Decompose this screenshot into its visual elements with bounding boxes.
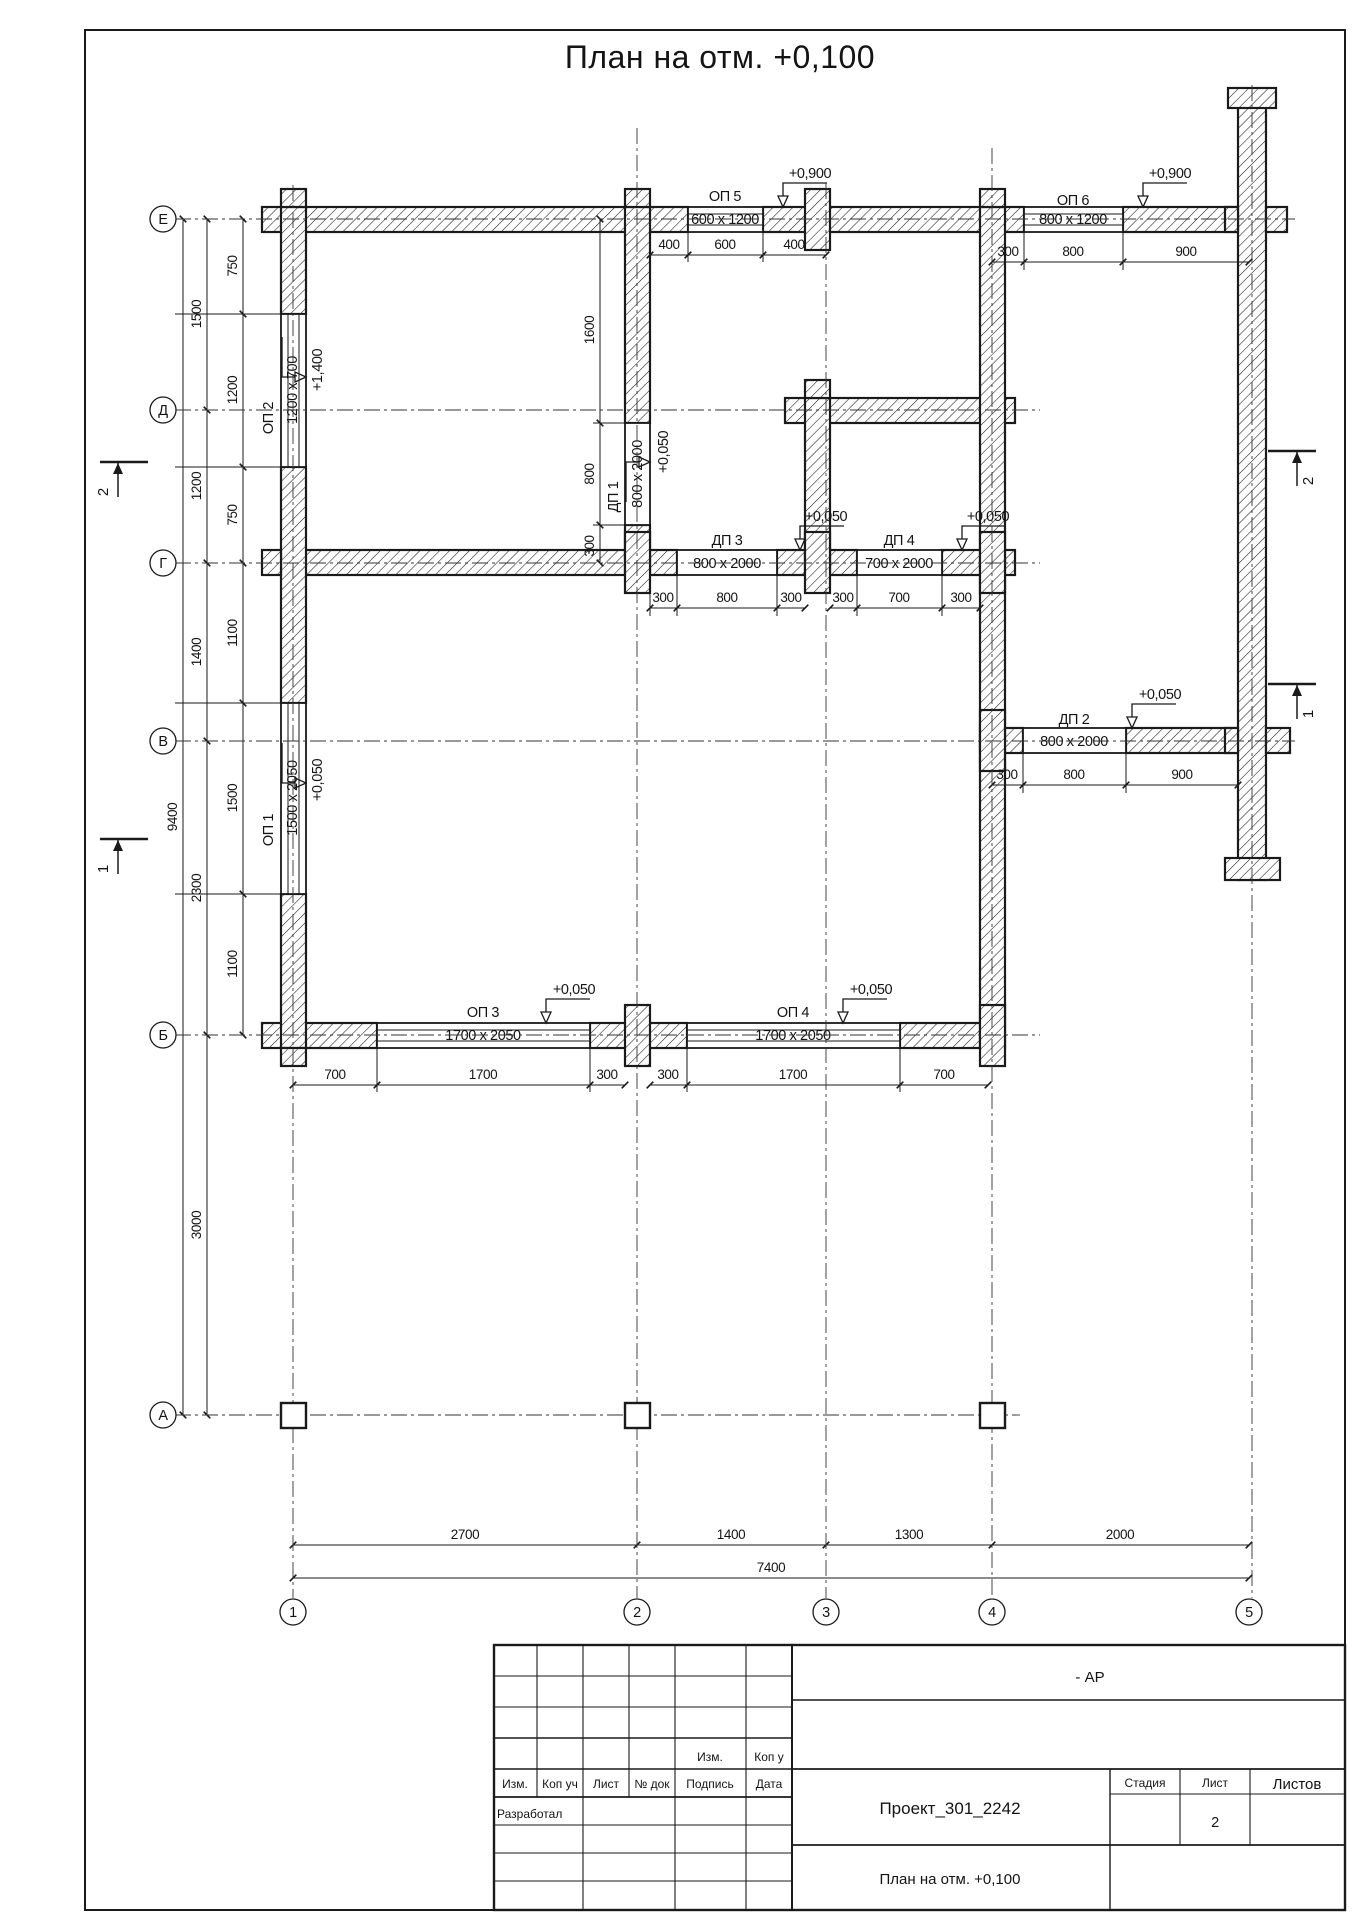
opening-label: ДП 2 xyxy=(1059,712,1090,728)
tb-sheet-number: 2 xyxy=(1211,1815,1219,1831)
page-border xyxy=(85,30,1345,1910)
axis-row-label: А xyxy=(158,1408,168,1424)
opening-label: ОП 3 xyxy=(467,1005,500,1021)
dim-label: 750 xyxy=(225,255,240,276)
dim-label: 300 xyxy=(596,1067,617,1082)
tb-header-sign: Подпись xyxy=(686,1777,734,1791)
section-labels: 2 1 2 1 xyxy=(95,477,1317,873)
dim-label: 1300 xyxy=(895,1527,923,1542)
dim-label-total: 7400 xyxy=(757,1560,785,1575)
tb-header-date: Дата xyxy=(756,1777,783,1791)
opening-size: 1700 x 2050 xyxy=(755,1028,831,1044)
opening-size: 800 x 2000 xyxy=(1040,734,1108,750)
axis-col-label: 1 xyxy=(289,1605,297,1621)
level-mark: +0,050 xyxy=(553,982,596,998)
dim-label: 1200 xyxy=(189,472,204,500)
section-label: 2 xyxy=(95,488,112,496)
opening-size: 800 x 1200 xyxy=(1039,212,1107,228)
dim-label: 1100 xyxy=(225,619,240,646)
dim-label: 1200 xyxy=(225,376,240,404)
axis-row-label: Г xyxy=(159,556,167,572)
axis-row-label: В xyxy=(158,734,167,750)
dim-label: 1700 xyxy=(469,1067,497,1082)
floorplan-canvas: План на отм. +0,100 xyxy=(0,0,1358,1920)
dim-label: 700 xyxy=(933,1067,954,1082)
opening-label: ДП 1 xyxy=(606,481,622,512)
tb-developed: Разработал xyxy=(497,1807,562,1821)
opening-label: ДП 3 xyxy=(712,533,743,549)
dim-label: 3000 xyxy=(189,1211,204,1239)
axis-col-label: 5 xyxy=(1245,1605,1253,1621)
axis-col-label: 2 xyxy=(633,1605,641,1621)
tb-sheet-label: Лист xyxy=(1202,1776,1229,1790)
axis-row-label: Д xyxy=(158,403,168,419)
level-mark: +0,050 xyxy=(1139,687,1182,703)
opening-size: 1500 x 2050 xyxy=(285,760,301,836)
opening-size: 800 x 2000 xyxy=(630,440,646,508)
level-mark: +0,050 xyxy=(310,758,326,801)
dim-label: 750 xyxy=(225,504,240,525)
dim-label: 2700 xyxy=(451,1527,479,1542)
dim-label: 800 xyxy=(716,590,737,605)
walls-layer xyxy=(262,88,1290,1066)
level-mark: +0,050 xyxy=(850,982,893,998)
opening-label: ОП 1 xyxy=(261,814,277,847)
tb-header-list: Лист xyxy=(593,1777,620,1791)
opening-label: ОП 2 xyxy=(261,402,277,435)
dim-label: 900 xyxy=(1175,244,1196,259)
axis-col-label: 4 xyxy=(988,1605,996,1621)
tb-upper-izm: Изм. xyxy=(697,1750,723,1764)
axis-col-label: 3 xyxy=(822,1605,830,1621)
dim-label: 800 xyxy=(1062,244,1083,259)
level-mark: +0,050 xyxy=(967,509,1010,525)
level-mark: +0,900 xyxy=(789,166,832,182)
dim-label: 1600 xyxy=(582,316,597,344)
title-block: - АР Изм. Коп у Изм. Коп уч Лист № док П… xyxy=(494,1645,1345,1910)
tb-sheets-label: Листов xyxy=(1273,1776,1322,1793)
axis-row-label: Б xyxy=(158,1028,167,1044)
dim-label: 300 xyxy=(950,590,971,605)
dim-label: 2000 xyxy=(1106,1527,1134,1542)
dim-label: 600 xyxy=(714,237,735,252)
opening-size: 1700 x 2050 xyxy=(445,1028,521,1044)
level-mark: +0,900 xyxy=(1149,166,1192,182)
dim-label: 1500 xyxy=(189,300,204,328)
axis-row-label: Е xyxy=(158,212,168,228)
dim-label: 1100 xyxy=(225,950,240,977)
opening-label: ДП 4 xyxy=(884,533,915,549)
dimension-labels: 1500 1200 1400 2300 3000 9400 750 1200 7… xyxy=(165,237,1197,1575)
dim-label: 400 xyxy=(783,237,804,252)
dim-label: 300 xyxy=(657,1067,678,1082)
tb-project-name: Проект_301_2242 xyxy=(879,1799,1020,1818)
opening-size: 600 x 1200 xyxy=(691,212,759,228)
level-mark: +0,050 xyxy=(656,430,672,473)
dim-label: 1700 xyxy=(779,1067,807,1082)
dim-label: 400 xyxy=(658,237,679,252)
tb-upper-kol: Коп у xyxy=(754,1750,784,1764)
tb-stage-label: Стадия xyxy=(1125,1776,1166,1790)
dim-label: 700 xyxy=(888,590,909,605)
axis-bubbles: Е Д Г В Б А 1 2 3 4 5 xyxy=(150,206,1262,1625)
opening-label: ОП 4 xyxy=(777,1005,810,1021)
tb-drawing-title: План на отм. +0,100 xyxy=(880,1871,1021,1888)
tb-header-doc: № док xyxy=(634,1777,670,1791)
dim-label: 300 xyxy=(652,590,673,605)
opening-size: 800 x 2000 xyxy=(693,556,761,572)
drawing-sheet: План на отм. +0,100 xyxy=(0,0,1358,1920)
dim-label: 700 xyxy=(324,1067,345,1082)
level-mark: +1,400 xyxy=(310,348,326,391)
dim-label: 300 xyxy=(832,590,853,605)
dim-label: 300 xyxy=(996,767,1017,782)
opening-size: 700 x 2000 xyxy=(865,556,933,572)
opening-labels: ОП 5 600 x 1200 +0,900 ОП 6 800 x 1200 +… xyxy=(261,166,1192,1044)
section-label: 1 xyxy=(1300,710,1317,718)
tb-header-izm: Изм. xyxy=(502,1777,528,1791)
axis-grid xyxy=(175,85,1295,1598)
dim-label: 300 xyxy=(582,535,597,556)
opening-label: ОП 6 xyxy=(1057,193,1090,209)
section-label: 1 xyxy=(95,865,112,873)
dim-label: 2300 xyxy=(189,874,204,902)
dim-label: 1400 xyxy=(717,1527,745,1542)
dim-label: 900 xyxy=(1171,767,1192,782)
dim-label: 800 xyxy=(582,463,597,484)
doc-code: - АР xyxy=(1075,1669,1104,1686)
dim-label: 1400 xyxy=(189,638,204,666)
page-title: План на отм. +0,100 xyxy=(565,39,875,75)
columns-row-a xyxy=(281,1403,1005,1428)
dim-label: 300 xyxy=(997,244,1018,259)
dimension-lines xyxy=(175,219,1249,1578)
dim-label: 300 xyxy=(780,590,801,605)
tb-header-kol: Коп уч xyxy=(542,1777,578,1791)
dim-label: 800 xyxy=(1063,767,1084,782)
dim-label-overall: 9400 xyxy=(165,803,180,831)
section-label: 2 xyxy=(1300,477,1317,485)
dim-label: 1500 xyxy=(225,784,240,812)
opening-label: ОП 5 xyxy=(709,189,742,205)
